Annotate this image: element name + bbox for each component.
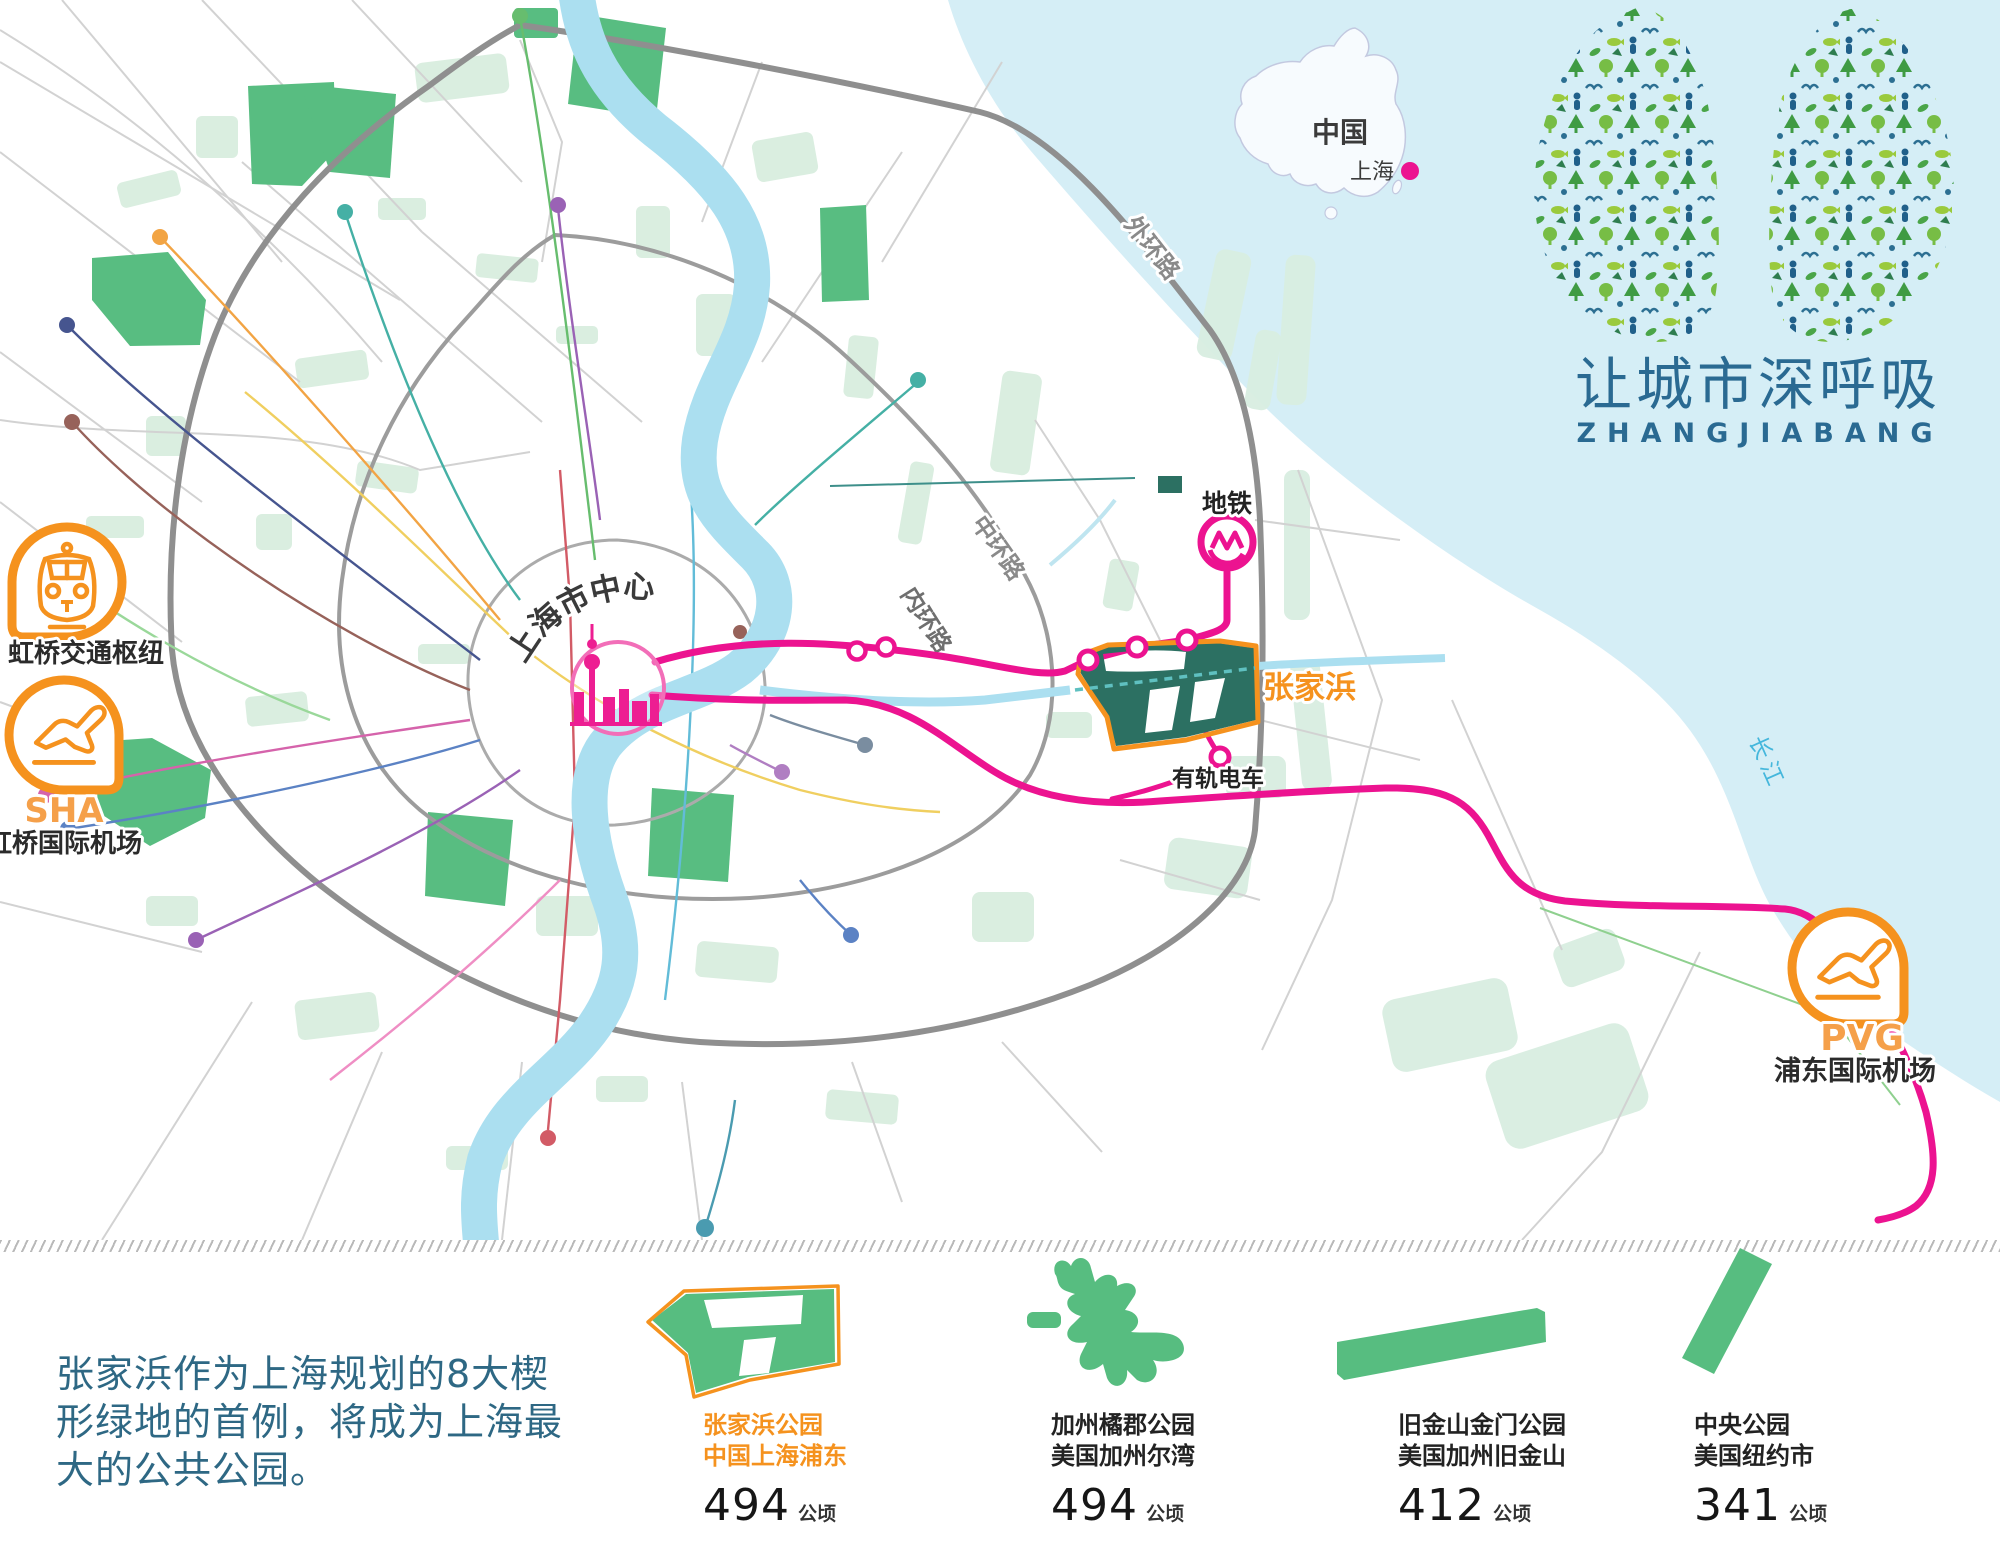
park-area: 494公顷 — [1051, 1480, 1195, 1531]
pvg-code: PVG — [1820, 1018, 1904, 1059]
sha-code: SHA — [24, 791, 104, 831]
park-area-unit: 公顷 — [1146, 1503, 1184, 1525]
park-area-value: 412 — [1398, 1480, 1485, 1531]
park-area: 341公顷 — [1694, 1480, 1827, 1531]
small-dark-green — [1158, 476, 1182, 493]
inset-country-label: 中国 — [1312, 116, 1368, 149]
metro-label: 地铁 — [1202, 489, 1252, 518]
shape-orange-county-park — [1025, 1252, 1190, 1404]
sha-label: 虹桥国际机场 — [0, 829, 142, 859]
pvg-label: 浦东国际机场 — [1774, 1055, 1936, 1087]
shape-zhangjiabang-park — [638, 1280, 843, 1402]
park-location: 中国上海浦东 — [703, 1441, 847, 1472]
park-card-golden-gate: 旧金山金门公园 美国加州旧金山 412公顷 — [1398, 1410, 1566, 1531]
park-area-value: 494 — [1051, 1480, 1138, 1531]
tram-label: 有轨电车 — [1172, 765, 1264, 792]
park-area-value: 341 — [1694, 1480, 1781, 1531]
shanghai-dot — [1401, 162, 1419, 180]
park-card-orange-county: 加州橘郡公园 美国加州尔湾 494公顷 — [1051, 1410, 1195, 1531]
park-card-zhangjiabang: 张家浜公园 中国上海浦东 494公顷 — [703, 1410, 847, 1531]
park-name: 张家浜公园 — [703, 1410, 847, 1441]
inset-city-label: 上海 — [1350, 160, 1394, 185]
intro-paragraph: 张家浜作为上海规划的8大楔形绿地的首例，将成为上海最大的公共公园。 — [56, 1350, 568, 1494]
shape-central-park — [1668, 1246, 1783, 1378]
park-area-value: 494 — [703, 1480, 790, 1531]
pvg-airport-badge — [1792, 912, 1904, 1024]
shanghai-map: 外环路 中环路 内环路 张家浜 地铁 有轨电车 — [0, 0, 2000, 1240]
park-area: 494公顷 — [703, 1480, 847, 1531]
park-location: 美国加州旧金山 — [1398, 1441, 1566, 1472]
comparison-section: 张家浜作为上海规划的8大楔形绿地的首例，将成为上海最大的公共公园。 张家浜公园 … — [0, 1252, 2000, 1545]
park-area: 412公顷 — [1398, 1480, 1566, 1531]
park-location: 美国加州尔湾 — [1051, 1441, 1195, 1472]
park-area-unit: 公顷 — [1493, 1503, 1531, 1525]
park-location: 美国纽约市 — [1694, 1441, 1827, 1472]
park-area-unit: 公顷 — [798, 1503, 836, 1525]
hongqiao-hub-label: 虹桥交通枢纽 — [8, 638, 164, 669]
park-area-unit: 公顷 — [1789, 1503, 1827, 1525]
metro-logo-icon — [1201, 516, 1253, 568]
poster-page: 外环路 中环路 内环路 张家浜 地铁 有轨电车 — [0, 0, 2000, 1545]
poster-title: 让城市深呼吸 — [1575, 352, 1941, 418]
park-name: 加州橘郡公园 — [1051, 1410, 1195, 1441]
park-name: 旧金山金门公园 — [1398, 1410, 1566, 1441]
park-map-label: 张家浜 — [1263, 670, 1356, 706]
map-canvas: 外环路 中环路 内环路 张家浜 地铁 有轨电车 — [0, 0, 2000, 1240]
shape-golden-gate-park — [1332, 1296, 1552, 1388]
park-name: 中央公园 — [1694, 1410, 1827, 1441]
sha-airport-badge — [9, 680, 119, 790]
park-card-central-park: 中央公园 美国纽约市 341公顷 — [1694, 1410, 1827, 1531]
hongqiao-hub-badge — [12, 527, 122, 637]
poster-subtitle: ZHANGJIABANG — [1576, 418, 1943, 449]
